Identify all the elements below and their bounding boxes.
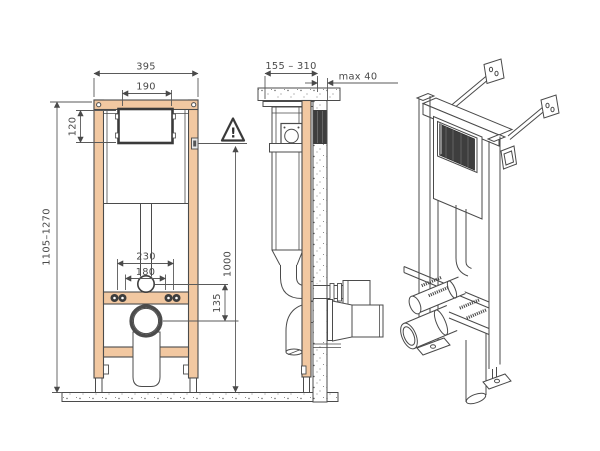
dim-overall-width: 395 [136, 62, 156, 73]
corner-screw [192, 103, 196, 107]
connection-box [343, 281, 370, 307]
installation-drawing-page: 395 190 120 1105–1270 230 180 135 1000 ! [0, 0, 600, 451]
inlet-connection [285, 129, 299, 143]
wall-pipe-gap [314, 302, 326, 341]
side-view [258, 88, 383, 402]
wall-bracket [451, 59, 504, 109]
tank-clamp [270, 144, 307, 153]
waste-outlet [130, 305, 162, 337]
opening-clip [173, 133, 176, 138]
foot-clip [184, 365, 189, 374]
isometric-view [397, 59, 559, 406]
dim-fixing-outer: 230 [136, 252, 156, 263]
frame-rail-right [489, 137, 500, 384]
rail-fitting-pin [193, 141, 196, 147]
dim-fixing-inner: 180 [136, 267, 156, 278]
dim-mounting-depth: 155 – 310 [265, 61, 316, 72]
left-rail [94, 100, 104, 378]
rail-side [302, 101, 311, 378]
dim-opening-height: 120 [68, 117, 79, 137]
foot-clip [104, 365, 109, 374]
support-foot [304, 377, 310, 393]
wall-bracket [508, 95, 559, 140]
dim-outlet-offset: 135 [212, 293, 223, 313]
dim-reference-height: 1000 [223, 251, 234, 277]
flush-pipe-side [272, 250, 303, 278]
foot-clip [302, 366, 307, 374]
inspection-panel [314, 110, 327, 144]
dim-frame-height: 1105–1270 [42, 208, 53, 265]
warning-triangle-icon: ! [222, 119, 244, 142]
opening-clip [173, 114, 176, 119]
dim-max-finish: max 40 [339, 72, 378, 83]
flush-pipe [141, 204, 152, 277]
wall-section [313, 101, 327, 403]
support-foot [190, 378, 197, 393]
dim-opening-width: 190 [136, 82, 156, 93]
opening-clip [116, 133, 119, 138]
floor-section [62, 393, 338, 402]
access-opening [119, 109, 173, 143]
support-foot [96, 378, 103, 393]
opening-clip [116, 114, 119, 119]
technical-drawing: 395 190 120 1105–1270 230 180 135 1000 ! [0, 0, 600, 451]
vertical-outlet-pipe [465, 333, 487, 406]
wc-connection-pipe [133, 332, 160, 387]
warning-mark: ! [230, 127, 236, 142]
side-connection-box [501, 146, 517, 169]
corner-screw [97, 103, 101, 107]
